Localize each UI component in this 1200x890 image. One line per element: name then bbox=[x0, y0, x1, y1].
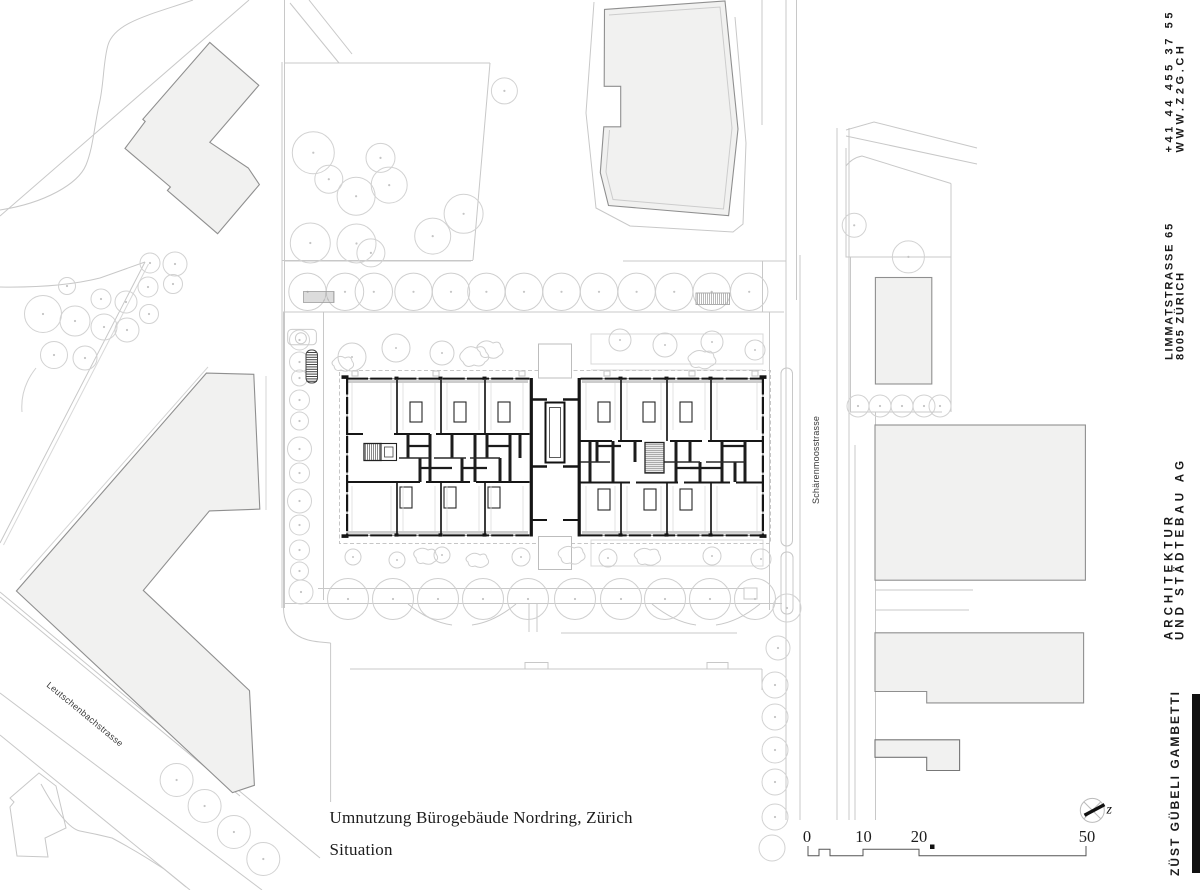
svg-text:Schärenmoosstrasse: Schärenmoosstrasse bbox=[811, 416, 821, 504]
svg-text:WWW.Z2G.CH: WWW.Z2G.CH bbox=[1175, 43, 1187, 153]
svg-text:Umnutzung Bürogebäude Nordring: Umnutzung Bürogebäude Nordring, Zürich bbox=[330, 808, 633, 827]
svg-text:z: z bbox=[1106, 803, 1113, 818]
svg-text:50: 50 bbox=[1079, 827, 1096, 846]
svg-text:Situation: Situation bbox=[330, 840, 393, 859]
svg-text:0: 0 bbox=[803, 827, 811, 846]
svg-text:ZÜST GÜBELI GAMBETTI: ZÜST GÜBELI GAMBETTI bbox=[1167, 690, 1182, 876]
svg-text:UND STÄDTEBAU AG: UND STÄDTEBAU AG bbox=[1174, 457, 1187, 640]
svg-text:20: 20 bbox=[911, 827, 928, 846]
svg-text:8005 ZÜRICH: 8005 ZÜRICH bbox=[1174, 271, 1187, 360]
svg-text:10: 10 bbox=[855, 827, 872, 846]
svg-text:Leutschenbachstrasse: Leutschenbachstrasse bbox=[45, 680, 125, 749]
